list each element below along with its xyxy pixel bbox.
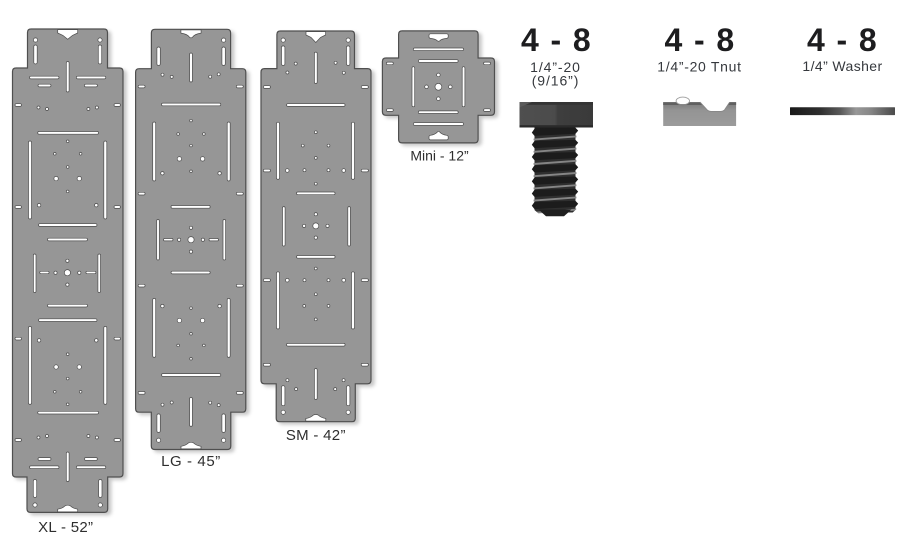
svg-text:Mini - 12”: Mini - 12” [410, 148, 469, 164]
svg-text:1/4” Washer: 1/4” Washer [802, 58, 882, 74]
svg-text:XL - 52”: XL - 52” [38, 519, 93, 536]
svg-text:4 - 8: 4 - 8 [807, 22, 878, 58]
svg-text:SM - 42”: SM - 42” [286, 427, 346, 444]
svg-text:(9/16”): (9/16”) [532, 73, 580, 89]
svg-text:LG - 45”: LG - 45” [161, 453, 221, 470]
svg-text:4 - 8: 4 - 8 [664, 22, 735, 58]
svg-text:1/4”-20 Tnut: 1/4”-20 Tnut [657, 59, 741, 75]
svg-text:4 - 8: 4 - 8 [521, 22, 592, 58]
